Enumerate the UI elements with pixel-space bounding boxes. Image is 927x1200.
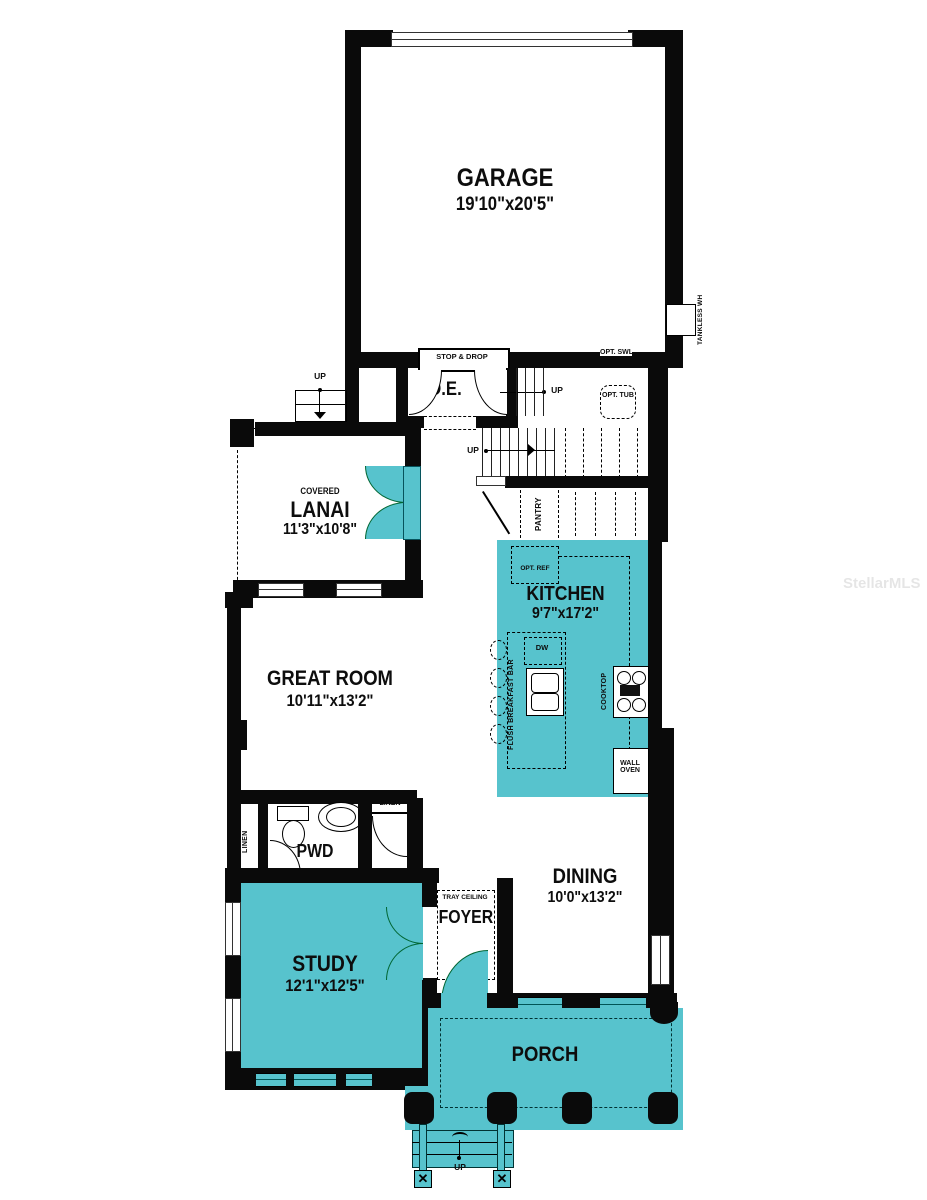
kitchen-counter-dash-v2 — [629, 716, 630, 750]
flush-breakfast-bar-label: FLUSH BREAKFAST BAR — [508, 652, 521, 758]
dishwasher-label: DW — [524, 644, 560, 652]
dining-dims: 10'0"x13'2" — [519, 890, 651, 907]
lanai-window — [258, 583, 304, 597]
stairs-up-line — [487, 450, 555, 451]
stop-and-drop-label: STOP & DROP — [420, 353, 504, 361]
kitchen-counter-dash — [559, 556, 629, 557]
porch-up-arc — [452, 1132, 468, 1142]
sink-basin-bottom — [531, 693, 559, 711]
stairwell-dash-below — [635, 492, 636, 536]
linen-right-door — [372, 816, 407, 857]
pantry-shelf-dash — [558, 490, 559, 538]
porch-post-rail — [497, 1124, 505, 1174]
foyer-label: FOYER — [439, 908, 492, 927]
study-window-left — [225, 998, 241, 1052]
linen-left-label: LINEN — [242, 820, 255, 864]
porch-post: ✕ — [414, 1170, 432, 1188]
lanai-entry-wall — [345, 352, 359, 430]
study-dims: 12'1"x12'5" — [255, 977, 396, 995]
watermark: StellarMLS — [843, 575, 927, 592]
kitchen-right-jog — [648, 728, 674, 798]
linen-left-divider — [258, 800, 268, 875]
garage-label: GARAGE — [430, 165, 580, 191]
porch-up-label: UP — [449, 1163, 471, 1172]
porch-column — [404, 1092, 434, 1124]
opt-ref-label: OPT. REF — [511, 566, 559, 573]
pwd-sink-basin — [326, 807, 356, 827]
lanai-right-wall-bottom — [405, 535, 421, 597]
lanai-prefix: COVERED — [258, 487, 381, 496]
pwd-right-wall — [407, 798, 423, 876]
porch-up-dot — [457, 1156, 461, 1160]
opt-tub — [600, 385, 636, 419]
right-wall-below-garage — [648, 352, 668, 542]
cooktop-burner — [632, 671, 646, 685]
tray-ceiling-label: TRAY CEILING — [437, 895, 493, 902]
porch-column — [648, 1092, 678, 1124]
stairwell-dash-below — [615, 492, 616, 536]
stair-dashed-tread — [583, 428, 584, 478]
dining-label: DINING — [519, 866, 651, 888]
stairwell-dash-below — [595, 492, 596, 536]
study-window-bottom — [346, 1073, 372, 1087]
opt-tub-label: OPT. TUB — [602, 392, 632, 399]
kitchen-right-wall — [648, 540, 662, 730]
lanai-label: LANAI — [258, 498, 381, 521]
side-steps-line — [319, 390, 320, 414]
side-steps-up-label: UP — [309, 372, 331, 381]
stair-first-steps — [516, 368, 548, 416]
lanai-top-wall — [255, 422, 408, 436]
stairs-up-label: UP — [462, 446, 484, 455]
porch-post-rail — [419, 1124, 427, 1174]
floor-plan: GARAGE 19'10"x20'5" TANKLESS WH STOP & D… — [0, 0, 927, 1200]
cooktop-center — [620, 685, 640, 696]
lanai-open-edge-dash — [237, 450, 238, 590]
dining-window-right — [651, 935, 670, 985]
stair-dashed-tread — [601, 428, 602, 478]
garage-left-wall — [345, 30, 361, 354]
porch-column — [487, 1092, 517, 1124]
garage-dims: 19'10"x20'5" — [430, 195, 580, 215]
sink-basin-top — [531, 673, 559, 693]
cooktop-burner — [617, 698, 631, 712]
toilet-tank — [277, 806, 309, 821]
lanai-door-slab — [403, 466, 421, 540]
stair-dashed-tread — [565, 428, 566, 478]
study-label: STUDY — [255, 952, 396, 975]
garage-door — [391, 32, 633, 47]
kitchen-dims: 9'7"x17'2" — [511, 606, 621, 623]
porch-label: PORCH — [492, 1044, 598, 1066]
porch-post: ✕ — [493, 1170, 511, 1188]
oe-cased-opening — [424, 416, 476, 430]
porch-column — [562, 1092, 592, 1124]
stair-dashed-tread — [619, 428, 620, 478]
pwd-linen-divider — [358, 798, 372, 876]
oe-left-wall — [396, 368, 408, 420]
kitchen-counter-dash-v — [629, 556, 630, 666]
study-window-left — [225, 902, 241, 956]
great-room-left-wall — [227, 597, 241, 792]
stairs-ledge — [476, 476, 506, 486]
lanai-right-wall-top — [405, 422, 421, 468]
great-room-dims: 10'11"x13'2" — [251, 692, 409, 710]
pantry-shelf-dash — [520, 490, 521, 538]
study-right-wall-upper — [422, 883, 437, 907]
linen-right-shelf — [372, 812, 407, 814]
lanai-dims: 11'3"x10'8" — [258, 522, 381, 539]
foyer-dining-wall — [497, 878, 513, 1000]
pantry-label: PANTRY — [534, 488, 548, 540]
stairs-up-arrowhead — [528, 444, 535, 456]
stair-treads — [482, 428, 558, 478]
stairs-bottom-wall — [505, 476, 648, 488]
study-window-bottom — [294, 1073, 336, 1087]
study-window-bottom — [256, 1073, 286, 1087]
side-steps-arrowhead — [314, 412, 326, 419]
linen-right-label: LINEN — [372, 800, 408, 807]
bar-stool — [490, 668, 507, 688]
pantry-door-line — [482, 491, 510, 534]
bar-stool — [490, 640, 507, 660]
wall-oven-label: WALL OVEN — [613, 760, 647, 775]
great-room-label: GREAT ROOM — [251, 668, 409, 690]
cooktop-burner — [617, 671, 631, 685]
side-steps-tread — [295, 404, 345, 405]
porch-column-arch — [650, 1002, 678, 1024]
bar-stool — [490, 696, 507, 716]
opt-swl-label: OPT. SWL — [600, 349, 632, 356]
study-top-wall — [227, 868, 439, 883]
lanai-window — [336, 583, 382, 597]
great-room-left-jog — [227, 720, 247, 750]
stairwell-dash-below — [575, 492, 576, 536]
tankless-water-heater — [666, 304, 696, 336]
oe-up-label: UP — [546, 386, 568, 395]
tankless-wh-label: TANKLESS WH — [697, 292, 709, 348]
kitchen-label: KITCHEN — [511, 584, 621, 605]
cooktop-burner — [632, 698, 646, 712]
cooktop-label: COOKTOP — [601, 668, 612, 714]
stair-dashed-tread — [637, 428, 638, 478]
bar-stool — [490, 724, 507, 744]
lanai-post-top-left — [230, 419, 254, 447]
oe-door-left — [409, 370, 442, 415]
